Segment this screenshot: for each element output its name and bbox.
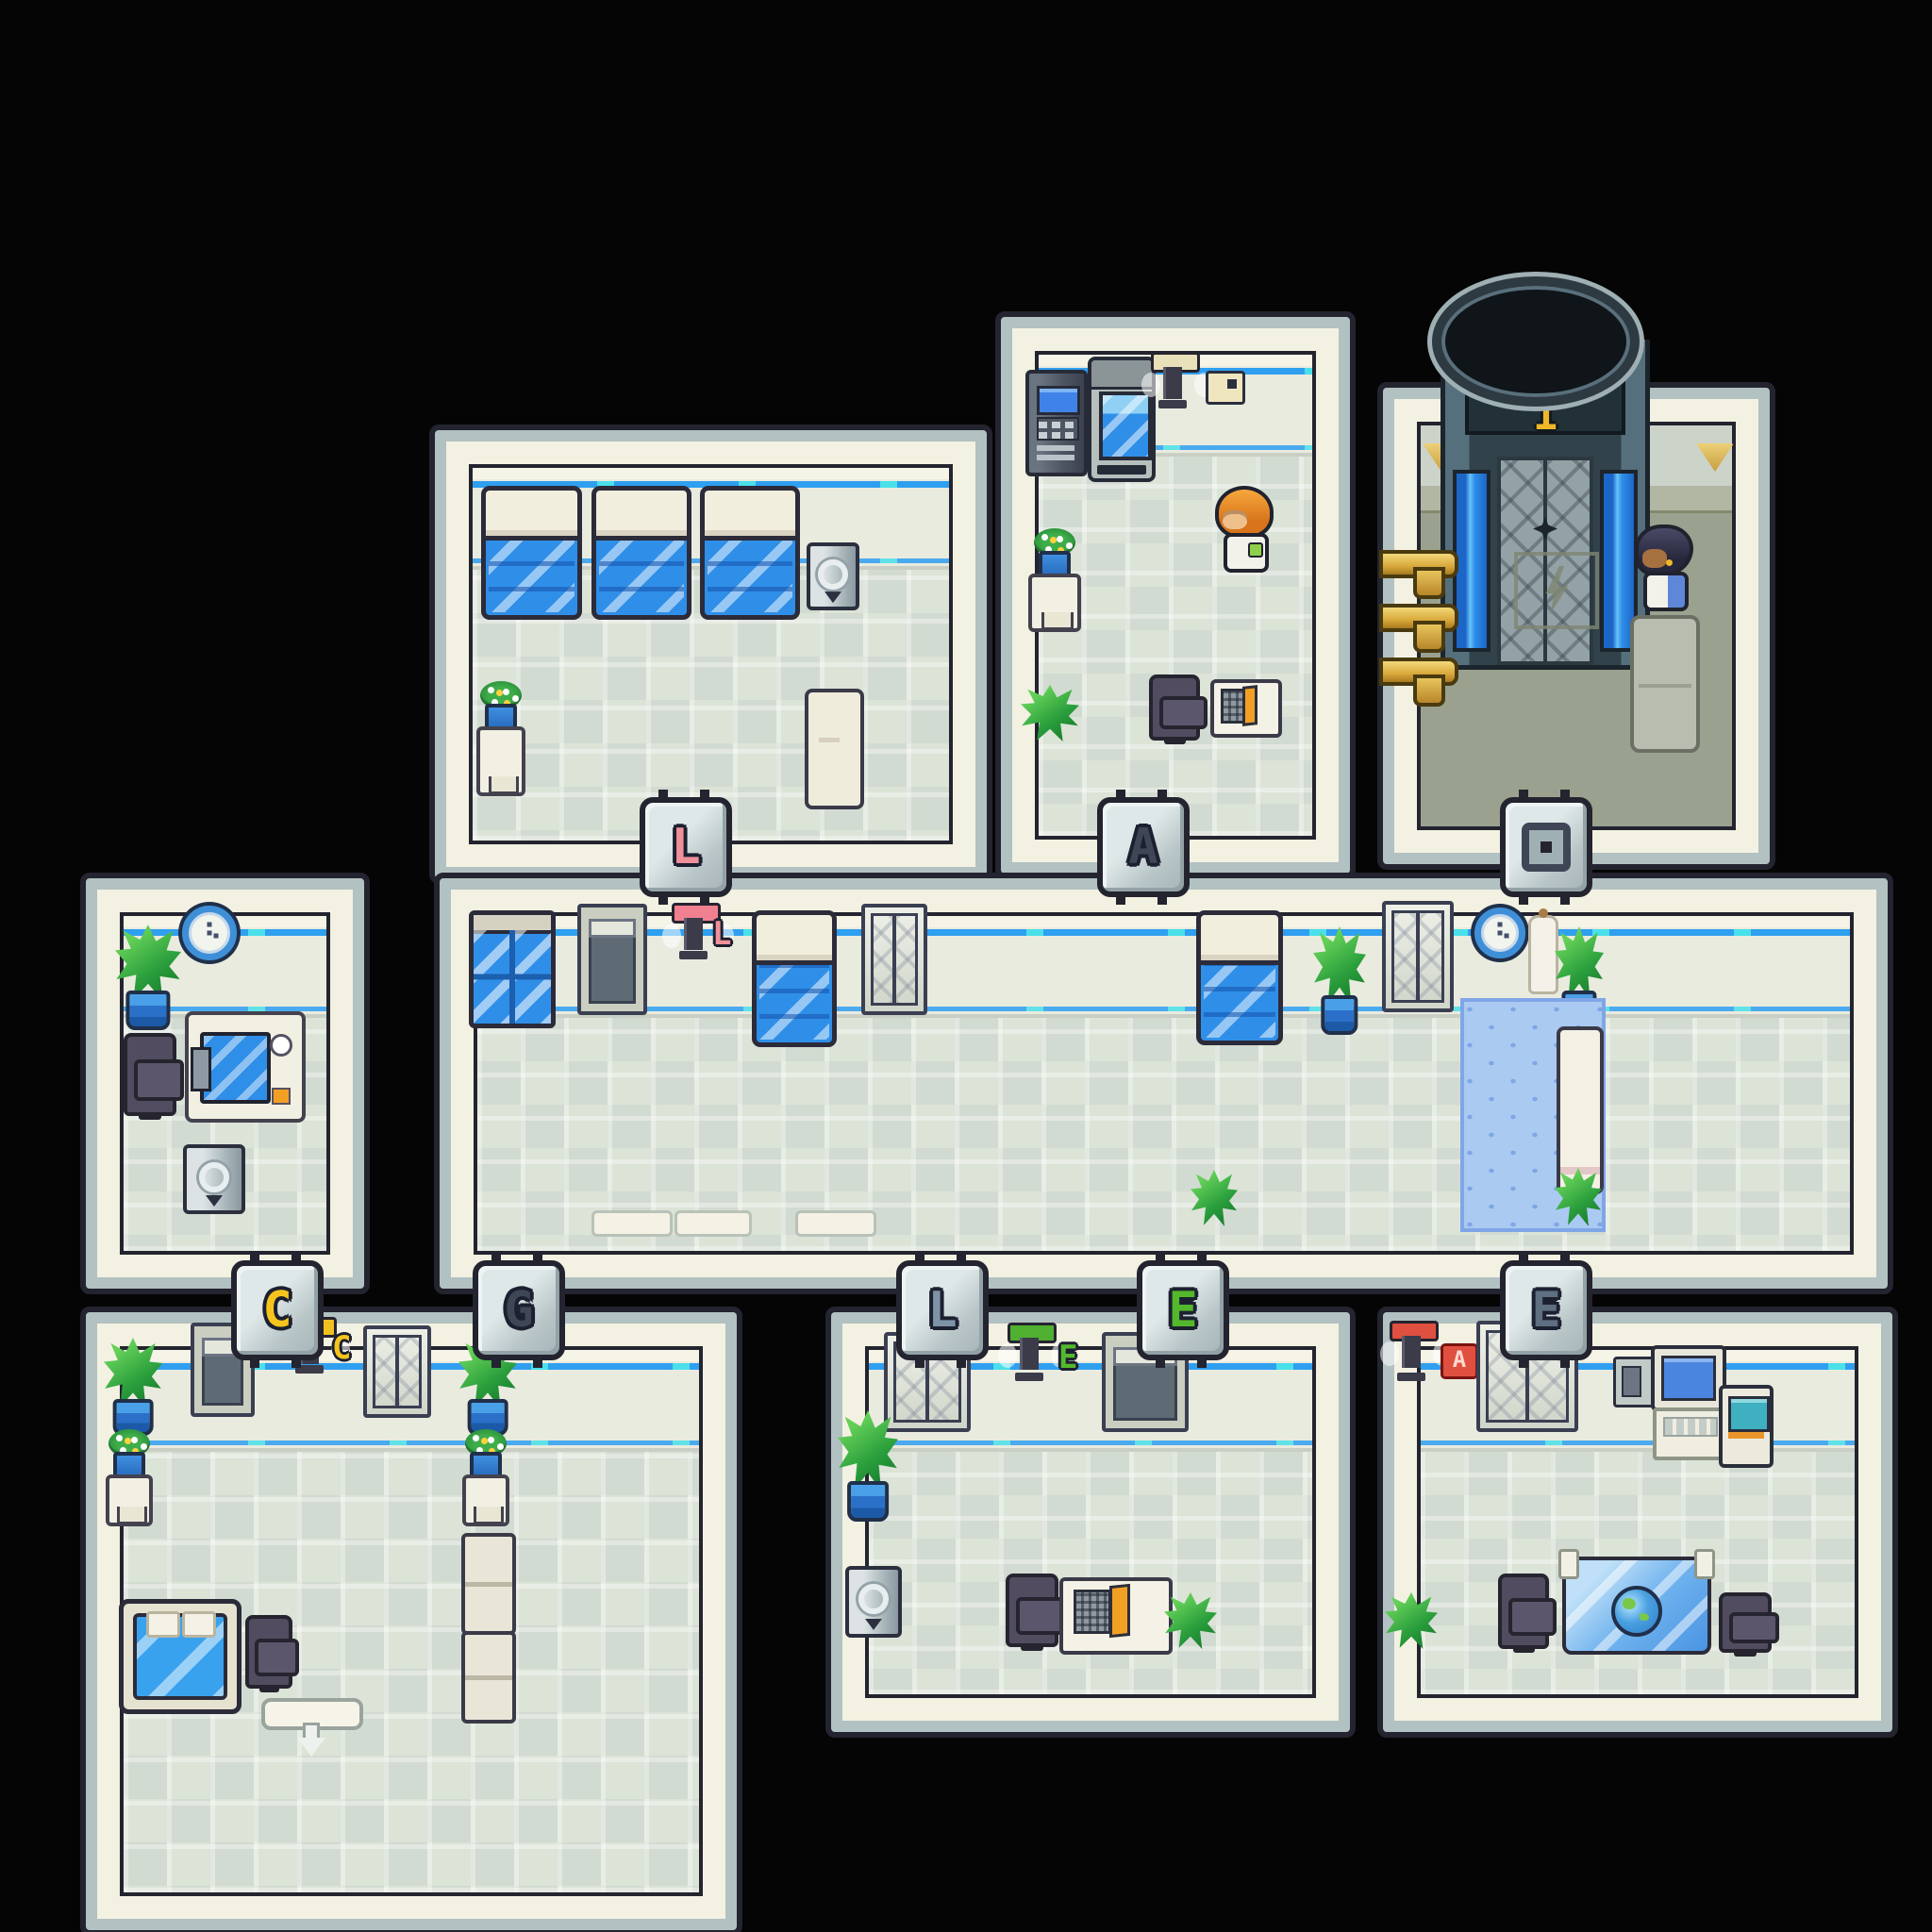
floor-plant bbox=[1385, 1592, 1438, 1649]
scanner-base bbox=[295, 1365, 324, 1374]
lab-coat bbox=[1224, 533, 1269, 573]
scanner-glow bbox=[1141, 373, 1160, 397]
gold-pipe-icon bbox=[1379, 604, 1451, 651]
hospital-bed bbox=[752, 910, 837, 1047]
hospital-bed bbox=[591, 486, 691, 620]
scanner-glow bbox=[998, 1343, 1017, 1368]
atm-screen bbox=[1037, 386, 1079, 415]
door-marker-g[interactable]: G bbox=[473, 1260, 565, 1360]
facility-map: 1 L bbox=[0, 0, 1932, 1932]
lounge-room-sign: C bbox=[332, 1334, 351, 1362]
scanner-stem bbox=[684, 918, 703, 950]
marker-glyph-e-green: E bbox=[1168, 1282, 1197, 1339]
flower-table bbox=[1028, 528, 1081, 632]
marker-glyph-g: G bbox=[504, 1282, 533, 1339]
scanner-stem bbox=[1020, 1338, 1039, 1370]
globe-icon bbox=[1611, 1586, 1662, 1637]
office-east-room-sign: E bbox=[1058, 1343, 1077, 1372]
scanner-base bbox=[679, 951, 708, 959]
table-post bbox=[1558, 1549, 1579, 1579]
stretcher bbox=[805, 689, 864, 809]
potted-plant bbox=[115, 924, 181, 1030]
bench bbox=[461, 1533, 516, 1635]
atm-machine[interactable] bbox=[1025, 370, 1088, 476]
gold-pipe-icon bbox=[1379, 658, 1451, 705]
floor-plant bbox=[1191, 1170, 1238, 1226]
side-table bbox=[1028, 574, 1081, 632]
elevator-cylinder-top bbox=[1432, 276, 1640, 407]
keyboard-desk[interactable] bbox=[1653, 1407, 1724, 1460]
flower-table bbox=[462, 1429, 509, 1526]
npc-woman[interactable] bbox=[1635, 525, 1690, 611]
atm-keypad bbox=[1037, 417, 1079, 441]
scanner-glow bbox=[1380, 1341, 1399, 1366]
door-threshold bbox=[675, 1210, 752, 1237]
marker-glyph-c: C bbox=[262, 1282, 291, 1339]
elevator-glass-left bbox=[1453, 470, 1491, 652]
side-table bbox=[476, 726, 525, 796]
wall-scanner[interactable] bbox=[1008, 1323, 1051, 1381]
vending-glass bbox=[1099, 391, 1153, 460]
lightning-floor-plate bbox=[1514, 552, 1599, 629]
door-marker-c[interactable]: C bbox=[231, 1260, 324, 1360]
medical-machine[interactable] bbox=[807, 542, 859, 610]
scanner-base bbox=[1158, 400, 1187, 408]
scanner-stem bbox=[1402, 1336, 1421, 1368]
wall-scanner[interactable] bbox=[672, 903, 715, 959]
notice-sign[interactable] bbox=[1206, 371, 1245, 405]
office-chair bbox=[1006, 1574, 1058, 1647]
reading-desk[interactable] bbox=[1059, 1577, 1173, 1655]
side-table bbox=[106, 1474, 153, 1526]
medical-machine[interactable] bbox=[845, 1566, 902, 1638]
woman-face bbox=[1642, 549, 1667, 568]
gold-pipe-icon bbox=[1379, 550, 1451, 597]
floor-mat bbox=[1630, 615, 1700, 753]
hospital-bed bbox=[1196, 910, 1283, 1045]
door-marker-e-green[interactable]: E bbox=[1137, 1260, 1229, 1360]
wall-scanner[interactable] bbox=[1151, 352, 1194, 408]
door-marker-e-gray[interactable]: E bbox=[1500, 1260, 1592, 1360]
orange-notepad-icon bbox=[272, 1088, 291, 1105]
hospital-bed bbox=[700, 486, 800, 620]
corridor-interior bbox=[477, 916, 1850, 1251]
dark-door[interactable] bbox=[577, 904, 647, 1015]
office-chair bbox=[1719, 1592, 1772, 1653]
door-threshold bbox=[591, 1210, 673, 1237]
bench bbox=[461, 1631, 516, 1724]
computer-monitor[interactable] bbox=[1651, 1345, 1726, 1411]
side-table bbox=[462, 1474, 509, 1526]
lounge-bed bbox=[119, 1599, 241, 1714]
exit-down-arrow-icon bbox=[297, 1723, 325, 1758]
marker-glyph-a: A bbox=[1128, 819, 1158, 875]
marker-glyph-l: L bbox=[671, 819, 700, 875]
floor-plant bbox=[1021, 685, 1079, 741]
flower-table bbox=[106, 1429, 153, 1526]
potted-plant bbox=[838, 1410, 898, 1522]
kiosk-terminal[interactable] bbox=[1719, 1385, 1774, 1468]
reading-desk[interactable] bbox=[1210, 679, 1282, 738]
scanner-base bbox=[1015, 1373, 1043, 1381]
corridor-room-sign: L bbox=[712, 920, 731, 948]
scanner-glow bbox=[662, 924, 681, 948]
door-marker-elevator[interactable] bbox=[1500, 797, 1592, 897]
pillow bbox=[146, 1611, 180, 1638]
laptop-desk[interactable] bbox=[185, 1011, 306, 1123]
hospital-bed bbox=[481, 486, 582, 620]
wall-window bbox=[469, 910, 556, 1028]
marker-glyph-e-gray: E bbox=[1531, 1282, 1560, 1339]
wall-scanner[interactable] bbox=[1390, 1321, 1433, 1381]
wall-clock bbox=[182, 906, 237, 960]
globe-table[interactable] bbox=[1562, 1557, 1711, 1655]
elevator-doors[interactable] bbox=[861, 904, 927, 1015]
flower-table bbox=[476, 681, 525, 796]
lightning-bolt-icon bbox=[1540, 566, 1574, 615]
woman-outfit bbox=[1643, 572, 1689, 611]
elevator-doors[interactable] bbox=[363, 1325, 431, 1418]
floor-plant bbox=[1555, 1168, 1602, 1226]
wall-clock bbox=[1474, 908, 1525, 958]
lab-room-sign: A bbox=[1441, 1343, 1478, 1379]
medical-machine[interactable] bbox=[183, 1144, 245, 1214]
potted-plant bbox=[1313, 926, 1366, 1035]
monitor-screen bbox=[1661, 1356, 1716, 1401]
office-east-floor bbox=[869, 1452, 1312, 1694]
kiosk-screen bbox=[1728, 1396, 1770, 1432]
office-chair bbox=[1149, 675, 1200, 741]
marker-glyph-l-gray: L bbox=[927, 1282, 957, 1339]
npc-scientist[interactable] bbox=[1215, 486, 1270, 569]
door-threshold bbox=[795, 1210, 876, 1237]
floor-plant bbox=[1164, 1592, 1217, 1649]
scanner-stem bbox=[1163, 367, 1182, 399]
door-marker-a[interactable]: A bbox=[1097, 797, 1190, 897]
scientist-face bbox=[1223, 510, 1247, 529]
office-chair bbox=[124, 1033, 176, 1116]
potted-plant bbox=[104, 1338, 162, 1436]
wall-phone[interactable] bbox=[1613, 1357, 1655, 1407]
pillow bbox=[182, 1611, 216, 1638]
coffee-mug-icon bbox=[270, 1034, 292, 1057]
elevator-plate-icon bbox=[1522, 823, 1571, 872]
office-chair bbox=[245, 1615, 292, 1689]
table-post bbox=[1694, 1549, 1715, 1579]
scanner-base bbox=[1397, 1373, 1425, 1381]
door-marker-ward[interactable]: L bbox=[640, 797, 732, 897]
door-marker-l[interactable]: L bbox=[896, 1260, 989, 1360]
laptop bbox=[200, 1032, 271, 1104]
atm-slot bbox=[1037, 445, 1074, 451]
office-chair bbox=[1498, 1574, 1549, 1649]
elevator-doors[interactable] bbox=[1382, 901, 1454, 1012]
